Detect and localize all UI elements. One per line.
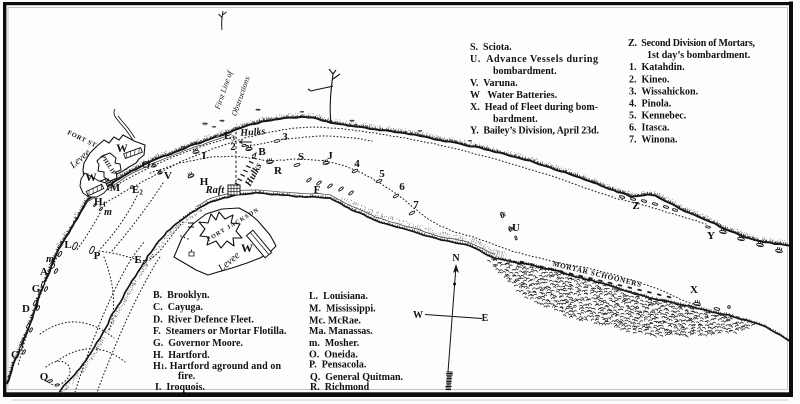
svg-text:Hulks: Hulks bbox=[239, 126, 266, 139]
svg-text:M: M bbox=[110, 182, 121, 194]
svg-text:2: 2 bbox=[230, 141, 236, 153]
svg-text:bombardment.: bombardment. bbox=[493, 66, 557, 77]
svg-text:W: W bbox=[116, 143, 128, 155]
svg-text:L. Louisiana.: L. Louisiana. bbox=[309, 291, 368, 302]
svg-text:6. Itasca.: 6. Itasca. bbox=[629, 123, 670, 134]
svg-text:H: H bbox=[200, 176, 209, 188]
svg-text:m: m bbox=[46, 254, 54, 265]
svg-text:m: m bbox=[104, 207, 112, 218]
svg-text:C: C bbox=[11, 349, 19, 361]
svg-text:V. Varuna.: V. Varuna. bbox=[470, 78, 518, 89]
svg-text:R. Richmond: R. Richmond bbox=[310, 382, 370, 393]
svg-text:H1. Hartford aground and on: H1. Hartford aground and on bbox=[153, 361, 281, 372]
svg-text:Q: Q bbox=[40, 371, 49, 383]
svg-text:I. Iroquois.: I. Iroquois. bbox=[155, 382, 205, 393]
svg-text:O: O bbox=[142, 159, 151, 171]
svg-text:Y. Bailey’s Division, April 2: Y. Bailey’s Division, April 23d. bbox=[470, 126, 600, 137]
svg-text:m. Mosher.: m. Mosher. bbox=[309, 338, 360, 349]
svg-text:7. Winona.: 7. Winona. bbox=[629, 135, 678, 146]
svg-text:P. Pensacola.: P. Pensacola. bbox=[309, 360, 367, 371]
svg-text:A: A bbox=[40, 266, 48, 278]
svg-text:W: W bbox=[241, 241, 253, 255]
svg-text:M. Mississippi.: M. Mississippi. bbox=[309, 304, 376, 315]
svg-text:X. Head of Fleet during bom-: X. Head of Fleet during bom- bbox=[470, 102, 598, 113]
svg-text:1st day’s bombardment.: 1st day’s bombardment. bbox=[647, 50, 751, 61]
svg-text:5: 5 bbox=[379, 168, 385, 180]
svg-text:4. Pinola.: 4. Pinola. bbox=[629, 99, 672, 110]
svg-text:X: X bbox=[690, 284, 698, 296]
svg-text:R: R bbox=[274, 165, 283, 177]
svg-text:S: S bbox=[298, 151, 304, 163]
svg-text:J: J bbox=[327, 150, 333, 162]
svg-text:W Water Batteries.: W Water Batteries. bbox=[470, 90, 558, 101]
svg-text:7: 7 bbox=[413, 199, 419, 211]
svg-text:fire.: fire. bbox=[178, 371, 196, 382]
svg-text:F. Steamers or Mortar Flotill: F. Steamers or Mortar Flotilla. bbox=[153, 326, 287, 337]
svg-text:F: F bbox=[314, 184, 321, 196]
svg-text:G. Governor Moore.: G. Governor Moore. bbox=[153, 338, 243, 349]
svg-text:N: N bbox=[452, 253, 460, 264]
svg-text:W: W bbox=[85, 172, 97, 184]
svg-text:V: V bbox=[164, 170, 172, 182]
svg-text:B: B bbox=[258, 146, 266, 158]
svg-text:4: 4 bbox=[354, 158, 360, 170]
svg-text:W: W bbox=[413, 310, 423, 321]
svg-text:Y: Y bbox=[707, 230, 715, 242]
svg-text:bardment.: bardment. bbox=[493, 114, 538, 125]
svg-text:Z. Second Division of Mortars: Z. Second Division of Mortars, bbox=[628, 38, 756, 49]
svg-text:I: I bbox=[202, 150, 206, 162]
svg-text:B. Brooklyn.: B. Brooklyn. bbox=[153, 290, 210, 301]
svg-text:3: 3 bbox=[282, 131, 288, 143]
svg-text:Z: Z bbox=[632, 200, 639, 212]
svg-text:2. Kineo.: 2. Kineo. bbox=[629, 75, 670, 86]
svg-text:D: D bbox=[22, 303, 30, 315]
svg-text:L: L bbox=[64, 239, 71, 251]
svg-text:Mc. McRae.: Mc. McRae. bbox=[309, 316, 361, 327]
svg-text:E: E bbox=[134, 254, 141, 266]
svg-text:C. Cayuga.: C. Cayuga. bbox=[153, 302, 204, 313]
svg-text:U. Advance Vessels during: U. Advance Vessels during bbox=[470, 54, 598, 65]
svg-text:G: G bbox=[32, 283, 41, 295]
svg-text:6: 6 bbox=[399, 181, 405, 193]
svg-text:Ma. Manassas.: Ma. Manassas. bbox=[309, 326, 373, 337]
svg-text:D. River Defence Fleet.: D. River Defence Fleet. bbox=[153, 315, 254, 326]
svg-text:P: P bbox=[94, 250, 101, 262]
svg-text:E: E bbox=[482, 313, 489, 324]
svg-text:1. Katahdin.: 1. Katahdin. bbox=[629, 62, 685, 73]
svg-text:U: U bbox=[512, 222, 520, 234]
svg-text:3. Wissahickon.: 3. Wissahickon. bbox=[629, 87, 699, 98]
svg-text:5. Kennebec.: 5. Kennebec. bbox=[629, 111, 687, 122]
svg-text:H. Hartford.: H. Hartford. bbox=[153, 350, 210, 361]
svg-text:S. Sciota.: S. Sciota. bbox=[470, 42, 512, 53]
